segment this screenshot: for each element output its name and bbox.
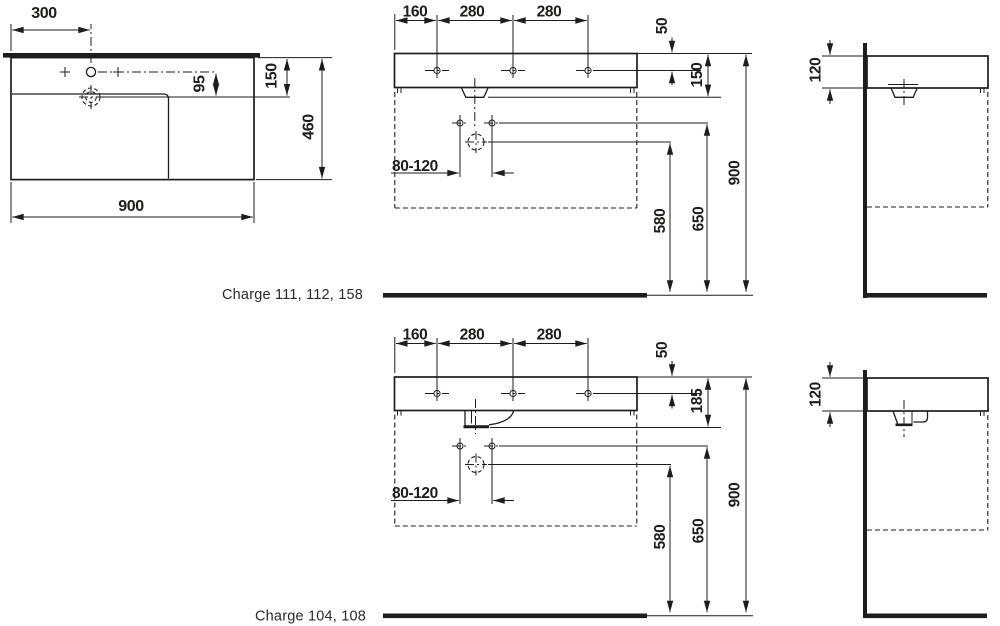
dim-label-right-hole-bottom: 280 bbox=[537, 327, 562, 344]
dim-label-top-to-holes-top: 50 bbox=[654, 18, 671, 34]
dim-label-drain-height-top: 580 bbox=[652, 209, 669, 234]
caption-charge-top: Charge 111, 112, 158 bbox=[222, 287, 363, 303]
dim-label-depth: 460 bbox=[301, 114, 318, 140]
dim-label-right-hole-top: 280 bbox=[537, 4, 562, 21]
dim-label-mid-hole-bottom: 280 bbox=[460, 327, 485, 344]
dim-label-left-hole-bottom: 160 bbox=[403, 327, 428, 344]
dim-label-holes-height-top: 650 bbox=[690, 207, 707, 232]
dim-label-body-height-bottom: 185 bbox=[689, 388, 706, 413]
front-bottom-dimension-lines bbox=[391, 337, 752, 612]
dim-label-left-hole-top: 160 bbox=[403, 4, 428, 21]
front-bottom-siphon bbox=[464, 399, 514, 434]
dim-label-top-to-holes-bottom: 50 bbox=[654, 342, 671, 358]
side-top-dimension-lines bbox=[822, 40, 864, 104]
side-bottom-body bbox=[867, 378, 988, 530]
front-top-dimension-lines bbox=[391, 14, 752, 292]
dim-label-rim-height-bottom: 900 bbox=[726, 483, 743, 508]
dim-label-rim-to-drain: 150 bbox=[264, 63, 281, 89]
front-top-body bbox=[395, 54, 638, 209]
front-view-top: 160 280 280 50 150 80-120 580 650 900 bbox=[383, 4, 753, 298]
front-bottom-fixing-holes bbox=[452, 438, 498, 504]
side-bottom-floor-line bbox=[865, 614, 987, 619]
technical-drawing-page: 300 95 150 460 900 bbox=[0, 0, 1000, 626]
dim-label-fixing-span-bottom: 80-120 bbox=[392, 485, 438, 502]
dim-label-tap-to-drain: 95 bbox=[192, 75, 209, 92]
side-view-top: 120 bbox=[807, 40, 988, 298]
dim-label-holes-height-bottom: 650 bbox=[690, 519, 707, 544]
front-top-floor-line bbox=[383, 293, 753, 298]
plan-view: 300 95 150 460 900 bbox=[3, 5, 332, 223]
front-bottom-body bbox=[395, 377, 638, 526]
dim-label-side-bottom-height: 120 bbox=[807, 382, 824, 407]
plan-basin-outline bbox=[3, 53, 260, 180]
side-top-body bbox=[867, 56, 988, 207]
washbasin-dimension-drawing: 300 95 150 460 900 bbox=[0, 0, 1000, 626]
front-view-bottom: 160 280 280 50 185 80-120 580 650 900 bbox=[383, 327, 753, 619]
dim-label-rim-height-top: 900 bbox=[726, 161, 743, 186]
side-top-floor-line bbox=[865, 293, 987, 298]
dim-label-width: 900 bbox=[118, 198, 144, 215]
dim-label-fixing-span-top: 80-120 bbox=[392, 158, 438, 175]
dim-label-drain-height-bottom: 580 bbox=[652, 525, 669, 550]
dim-label-mid-hole-top: 280 bbox=[460, 4, 485, 21]
dim-label-body-height-top: 150 bbox=[689, 63, 706, 88]
caption-charge-bottom: Charge 104, 108 bbox=[255, 609, 366, 625]
plan-tap-hole bbox=[60, 24, 217, 77]
dim-label-side-top-height: 120 bbox=[807, 58, 824, 83]
front-bottom-floor-line bbox=[383, 614, 753, 619]
dim-label-tap-offset: 300 bbox=[31, 5, 57, 22]
plan-drain bbox=[79, 85, 290, 109]
side-view-bottom: 120 bbox=[807, 362, 988, 618]
side-bottom-dimension-lines bbox=[822, 362, 864, 427]
